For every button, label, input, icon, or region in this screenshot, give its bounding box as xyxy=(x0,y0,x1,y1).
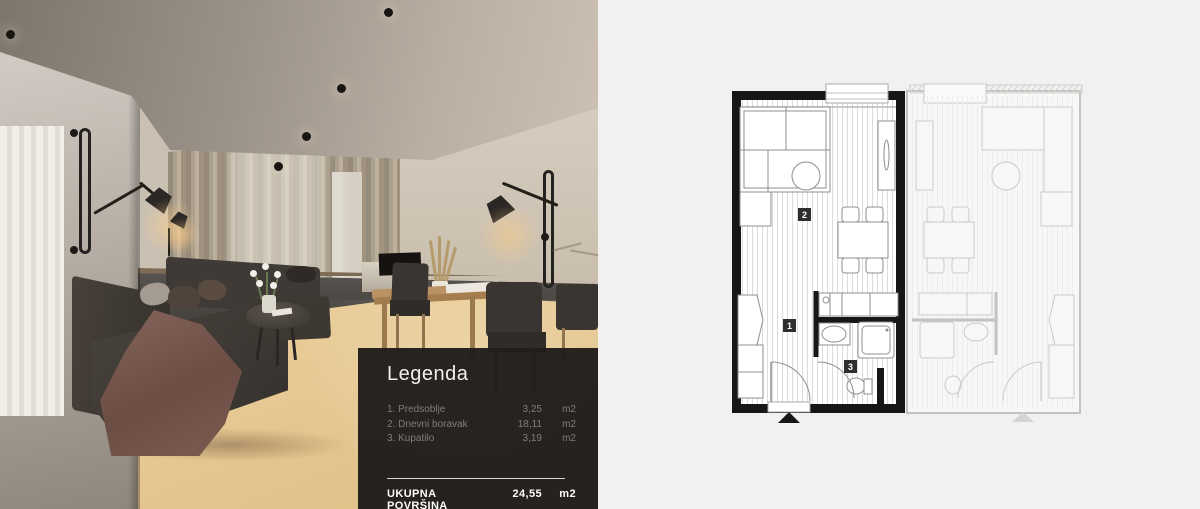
room-label: 3. Kupatilo xyxy=(387,432,498,447)
ceiling-spotlight-icon xyxy=(384,8,393,17)
legend-divider xyxy=(387,478,565,479)
real-estate-listing-image: Legenda 1. Predsoblje 3,25 m2 2. Dnevni … xyxy=(0,0,1200,509)
legend-total-row: UKUPNA POVRŠINA 24,55 m2 xyxy=(387,488,576,509)
dining-chair xyxy=(486,282,542,338)
wall-lamp-rail xyxy=(79,128,91,254)
flower xyxy=(270,282,277,289)
flower xyxy=(250,270,257,277)
room-area: 18,11 xyxy=(498,418,542,433)
plan-tv-cabinet xyxy=(878,121,895,190)
sofa-pillow xyxy=(168,286,200,310)
room-unit: m2 xyxy=(542,418,576,433)
sheer-curtain xyxy=(332,172,362,296)
legend-row: 1. Predsoblje 3,25 m2 xyxy=(387,403,576,418)
legend-panel: Legenda 1. Predsoblje 3,25 m2 2. Dnevni … xyxy=(358,348,598,509)
interior-render-photo: Legenda 1. Predsoblje 3,25 m2 2. Dnevni … xyxy=(0,0,598,509)
legend-title: Legenda xyxy=(387,363,576,386)
legend-rows: 1. Predsoblje 3,25 m2 2. Dnevni boravak … xyxy=(387,403,576,447)
lamp-mount xyxy=(70,246,78,254)
plan-wardrobe xyxy=(738,295,763,398)
room-label: 1. Predsoblje xyxy=(387,403,498,418)
ceiling-spotlight-icon xyxy=(6,30,15,39)
featured-unit xyxy=(732,84,905,423)
ghost-unit xyxy=(907,84,1082,422)
floor-plan: 2 1 3 xyxy=(598,0,1200,509)
dining-chair xyxy=(556,284,598,330)
left-window-sheer xyxy=(0,126,64,416)
total-area: 24,55 xyxy=(498,488,542,509)
legend-row: 3. Kupatilo 3,19 m2 xyxy=(387,432,576,447)
room-label-living: 2 xyxy=(802,210,807,220)
room-unit: m2 xyxy=(542,403,576,418)
room-label-bath: 3 xyxy=(848,362,853,372)
ceiling-spotlight-icon xyxy=(337,84,346,93)
flower xyxy=(274,271,281,278)
lamp-glow xyxy=(474,200,544,270)
room-unit: m2 xyxy=(542,432,576,447)
ceiling-spotlight-icon xyxy=(274,162,283,171)
room-label-hall: 1 xyxy=(787,321,792,331)
total-label: UKUPNA POVRŠINA xyxy=(387,488,498,509)
ceiling-spotlight-icon xyxy=(302,132,311,141)
entrance-marker-icon xyxy=(778,412,800,423)
lamp-mount xyxy=(70,129,78,137)
room-label: 2. Dnevni boravak xyxy=(387,418,498,433)
room-area: 3,25 xyxy=(498,403,542,418)
wall-lamp-rail xyxy=(543,170,554,288)
legend-row: 2. Dnevni boravak 18,11 m2 xyxy=(387,418,576,433)
coffee-table-leg xyxy=(276,328,279,366)
flower xyxy=(256,280,263,287)
sofa-pillow xyxy=(286,266,316,283)
total-unit: m2 xyxy=(542,488,576,509)
room-area: 3,19 xyxy=(498,432,542,447)
plan-coffee-table xyxy=(792,162,820,190)
lamp-glow xyxy=(160,214,204,258)
floor-plan-section: 2 1 3 HEROLDO NEKRETNINE www.heroldo.com… xyxy=(598,0,1200,509)
flower xyxy=(262,263,269,270)
